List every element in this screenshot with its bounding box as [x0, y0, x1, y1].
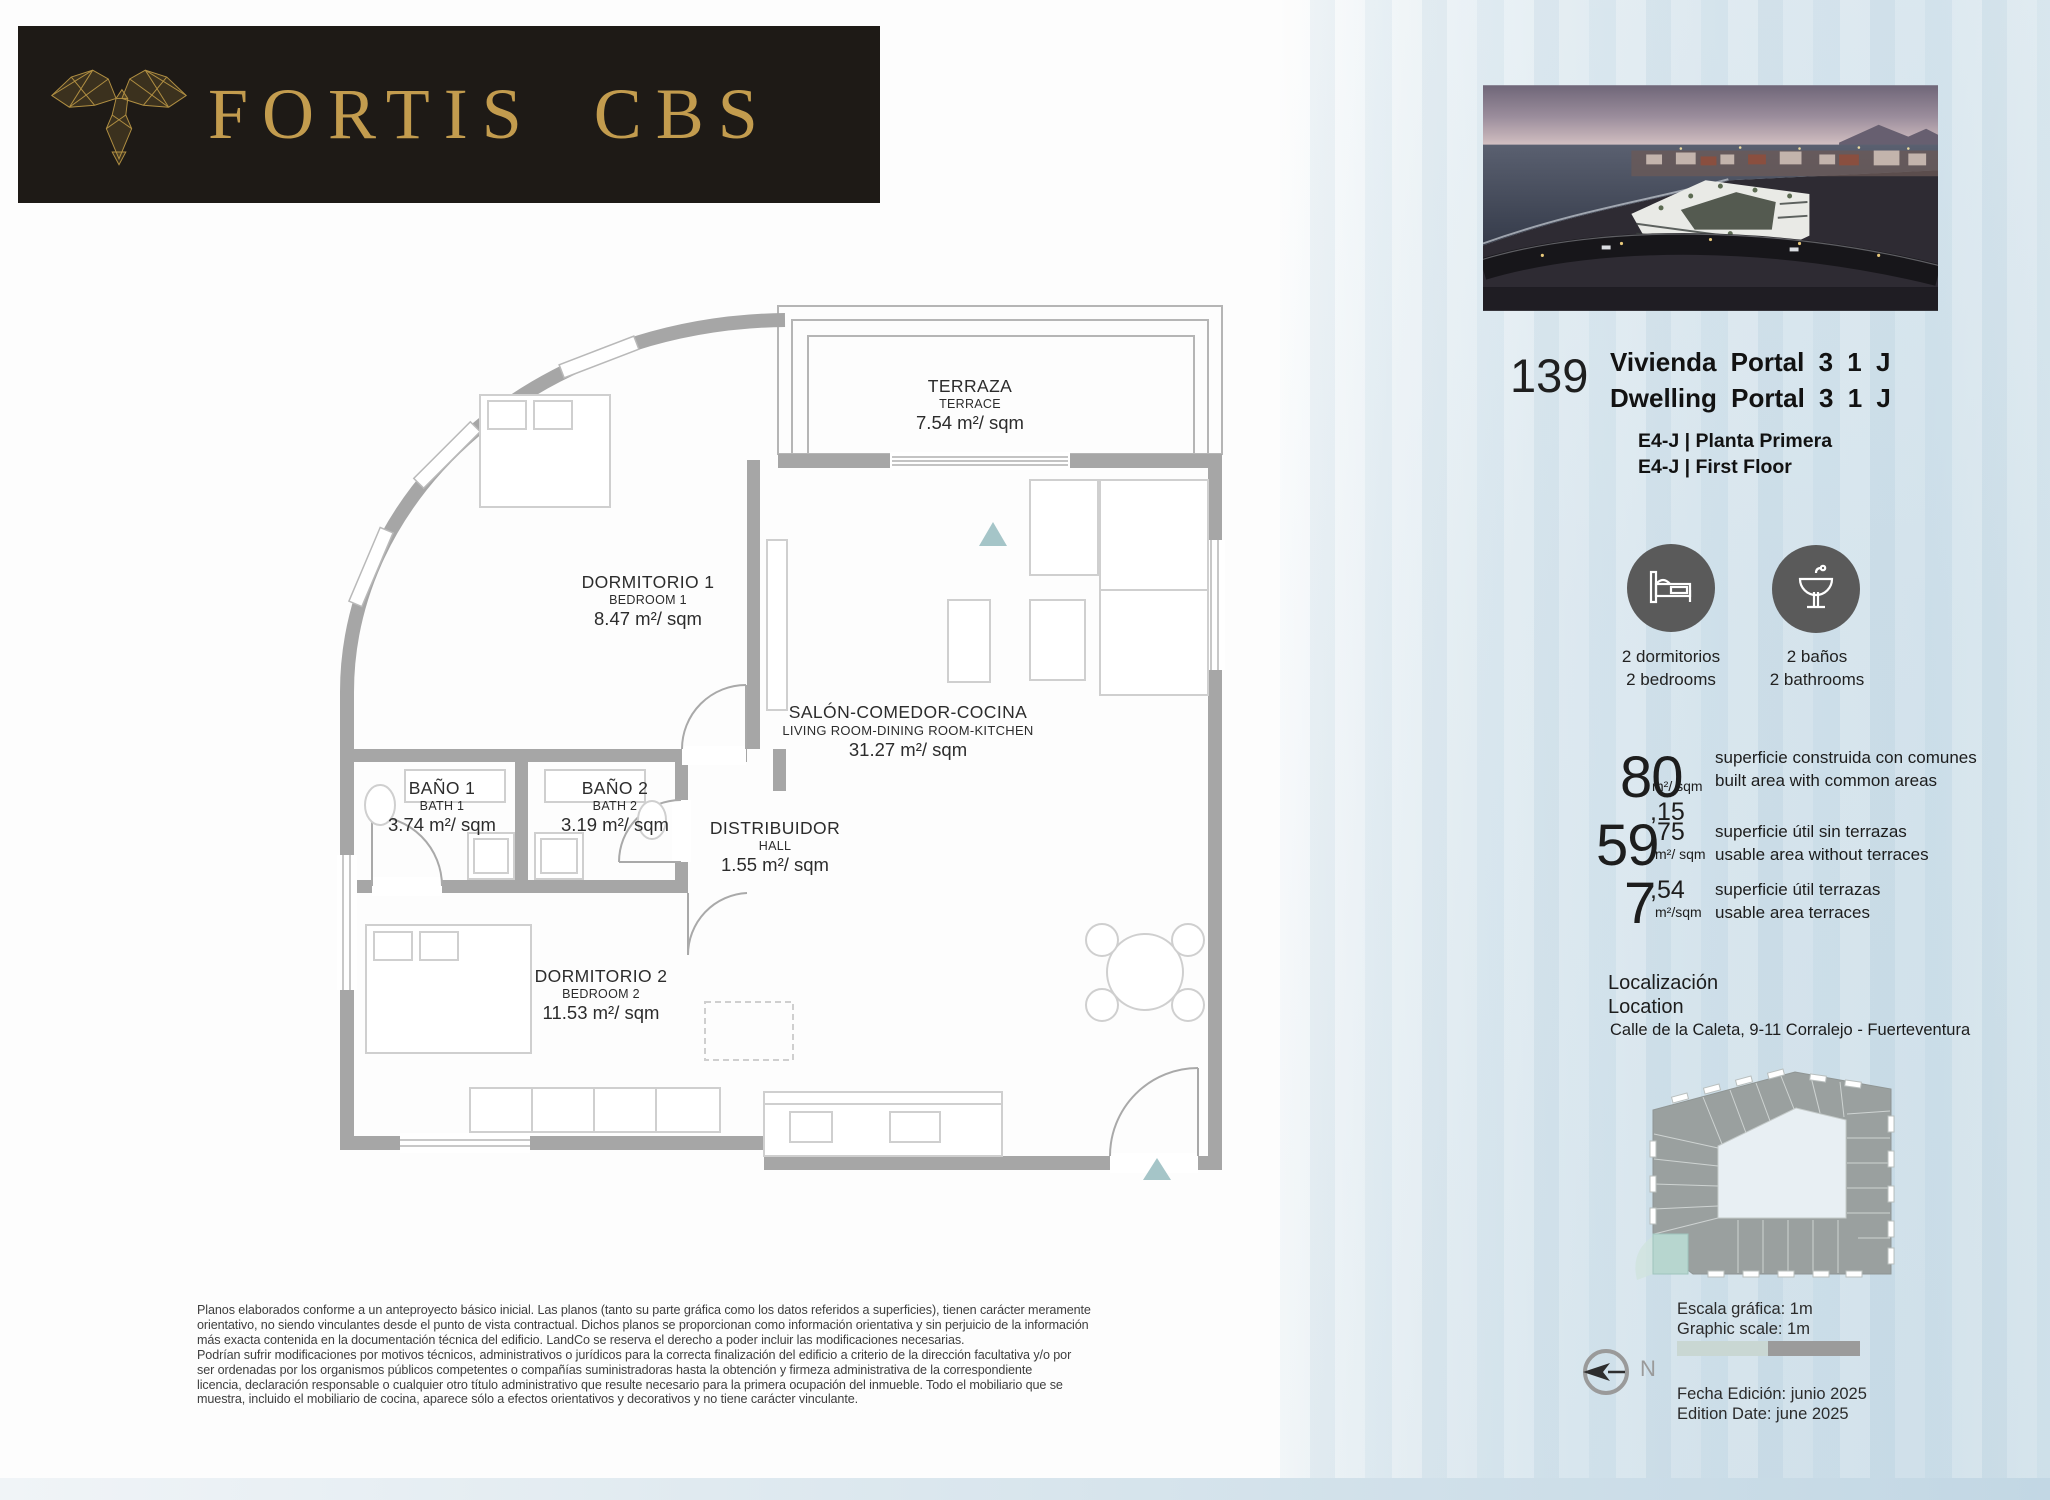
room-label-terraza: TERRAZA TERRACE 7.54 m²/ sqm	[916, 376, 1024, 434]
graphic-scale-bar	[1677, 1341, 1860, 1356]
keyplan-highlight-arc	[1635, 1236, 1653, 1280]
room-label-bano-1: BAÑO 1 BATH 1 3.74 m²/ sqm	[388, 778, 496, 836]
north-label: N	[1640, 1356, 1656, 1382]
terrace-area-unit: m²/sqm	[1655, 904, 1702, 920]
brochure-page: FORTIS CBS	[0, 0, 2050, 1500]
washbasin-icon	[1790, 563, 1842, 615]
room-label-salon: SALÓN-COMEDOR-COCINA LIVING ROOM-DINING …	[782, 702, 1033, 761]
graphic-scale-label: Escala gráfica: 1m Graphic scale: 1m	[1677, 1299, 1813, 1339]
terrace-area-description: superficie útil terrazas usable area ter…	[1715, 878, 1880, 924]
bed-icon	[1645, 562, 1697, 614]
terrace-orientation-marker	[979, 522, 1007, 546]
built-area-description: superficie construida con comunes built …	[1715, 746, 1977, 792]
brand-name: FORTIS CBS	[208, 73, 772, 156]
keyplan-highlighted-unit	[1653, 1234, 1688, 1274]
location-address: Calle de la Caleta, 9-11 Corralejo - Fue…	[1610, 1021, 1970, 1040]
unit-floor-en: E4-J | First Floor	[1638, 454, 1832, 480]
bottom-accent-band	[0, 1478, 2050, 1500]
aerial-photo-illustration	[1483, 84, 1938, 312]
room-label-dormitorio-1: DORMITORIO 1 BEDROOM 1 8.47 m²/ sqm	[582, 572, 715, 630]
usable-area-description: superficie útil sin terrazas usable area…	[1715, 820, 1929, 866]
scale-bar-segment-light	[1677, 1341, 1768, 1356]
brand-logo-banner: FORTIS CBS	[18, 26, 880, 203]
bathrooms-feature	[1772, 545, 1860, 633]
unit-title-es: Vivienda Portal 3 1 J	[1610, 344, 1891, 380]
usable-area-unit: m²/ sqm	[1655, 846, 1706, 862]
floor-plan: TERRAZA TERRACE 7.54 m²/ sqm DORMITORIO …	[330, 300, 1230, 1190]
room-label-distribuidor: DISTRIBUIDOR HALL 1.55 m²/ sqm	[710, 818, 840, 876]
location-label-es: Localización	[1608, 972, 1718, 995]
bedrooms-label: 2 dormitorios 2 bedrooms	[1622, 645, 1720, 691]
furniture	[365, 395, 1208, 1156]
aerial-photo	[1483, 84, 1938, 312]
room-label-bano-2: BAÑO 2 BATH 2 3.19 m²/ sqm	[561, 778, 669, 836]
unit-title: Vivienda Portal 3 1 J Dwelling Portal 3 …	[1610, 344, 1891, 416]
location-label-en: Location	[1608, 996, 1684, 1019]
bedrooms-feature	[1627, 544, 1715, 632]
unit-floor: E4-J | Planta Primera E4-J | First Floor	[1638, 428, 1832, 480]
built-area-unit: m²/ sqm	[1652, 778, 1703, 794]
usable-area-decimal: ,75	[1650, 818, 1685, 847]
floor-plan-drawing	[330, 300, 1230, 1190]
building-keyplan	[1628, 1056, 1913, 1291]
bathrooms-label: 2 baños 2 bathrooms	[1770, 645, 1865, 691]
unit-floor-es: E4-J | Planta Primera	[1638, 428, 1832, 454]
legal-disclaimer: Planos elaborados conforme a un anteproy…	[197, 1303, 1117, 1407]
edition-date: Fecha Edición: junio 2025 Edition Date: …	[1677, 1384, 1867, 1424]
eagle-icon	[44, 61, 194, 169]
unit-title-en: Dwelling Portal 3 1 J	[1610, 380, 1891, 416]
scale-bar-segment-dark	[1768, 1341, 1860, 1356]
north-compass-icon	[1578, 1344, 1634, 1400]
terrace-area-decimal: ,54	[1650, 876, 1685, 905]
room-label-dormitorio-2: DORMITORIO 2 BEDROOM 2 11.53 m²/ sqm	[535, 966, 668, 1024]
unit-number: 139	[1510, 348, 1588, 403]
